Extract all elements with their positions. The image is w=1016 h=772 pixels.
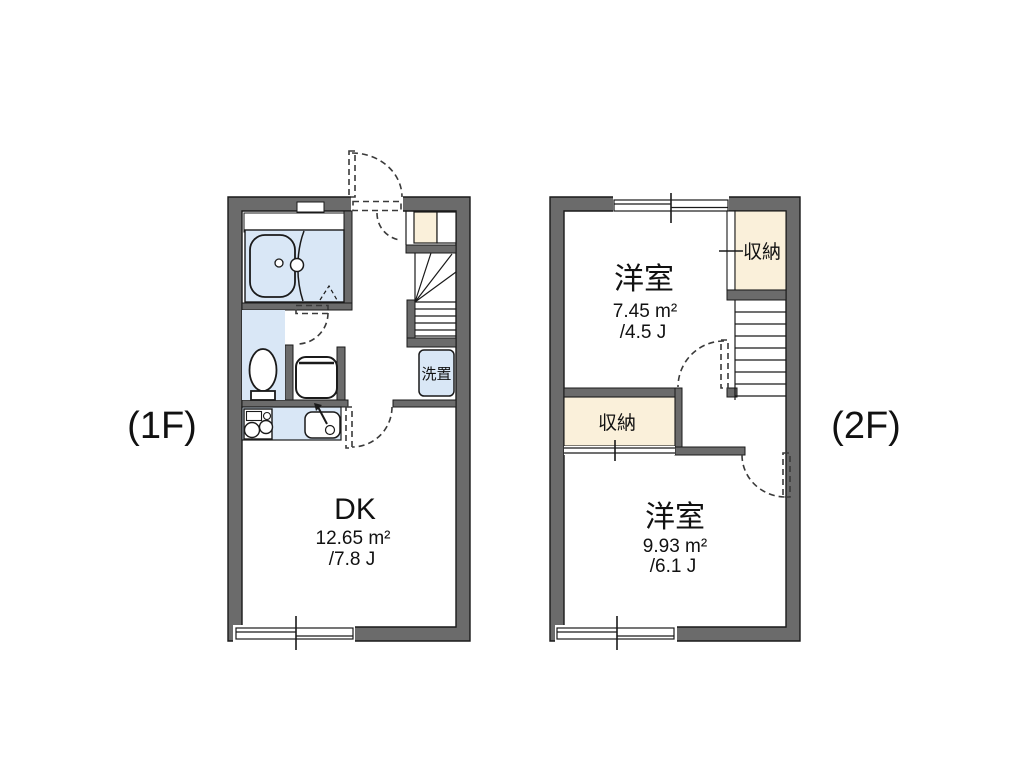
- room-bottom-label: 洋室: [645, 501, 705, 534]
- window-2f-top: [613, 193, 729, 223]
- room-top-door-leaf: [721, 340, 728, 388]
- floor-2f-plan: 収納 収納 洋室: [550, 193, 800, 650]
- washbasin: [296, 357, 337, 398]
- stove: [244, 409, 273, 439]
- room-bottom-door-swing: [742, 455, 785, 497]
- floor-1f-plan: 洗置 DK 12.65 m² /7.8 J: [228, 151, 470, 650]
- small-window-1f: [297, 202, 324, 212]
- bathroom: [244, 213, 344, 302]
- closet-bottom: 収納: [564, 397, 675, 461]
- room-bottom-jo: /6.1 J: [650, 556, 696, 577]
- genkan-door-swing: [377, 213, 400, 240]
- floorplan-drawing: 洗置 DK 12.65 m² /7.8 J: [0, 0, 1016, 772]
- dk-jo-label: /7.8 J: [329, 549, 375, 570]
- room-bottom-area: 9.93 m²: [643, 536, 707, 557]
- window-2f-bottom: [555, 616, 677, 650]
- entrance-door-leaf: [349, 151, 355, 197]
- closet-bottom-label: 収納: [598, 412, 636, 434]
- dk-room-label: DK: [334, 493, 376, 526]
- laundry-label: 洗置: [421, 366, 451, 383]
- closet-top: 収納: [719, 211, 786, 290]
- dk-door-leaf: [346, 407, 352, 448]
- toilet-room: [242, 310, 285, 400]
- shoe-cabinet: [406, 211, 456, 245]
- bathroom-door-swing: [297, 313, 328, 344]
- stairs-2f: [735, 300, 786, 400]
- bath-drain: [291, 259, 304, 272]
- laundry-space: 洗置: [419, 350, 454, 396]
- toilet: [250, 349, 277, 391]
- stairs-1f: [415, 253, 456, 336]
- room-top-jo: /4.5 J: [620, 322, 666, 343]
- bathtub: [250, 235, 295, 297]
- floorplan-canvas: 洗置 DK 12.65 m² /7.8 J: [0, 0, 1016, 772]
- room-top-label: 洋室: [614, 263, 674, 296]
- dk-door-swing: [352, 407, 392, 447]
- window-1f-bottom: [233, 616, 355, 650]
- entrance-door-swing: [352, 153, 402, 197]
- closet-top-label: 収納: [743, 241, 781, 263]
- bathtub-drain: [275, 259, 283, 267]
- floor2-label: (2F): [831, 405, 901, 447]
- floor1-label: (1F): [127, 405, 197, 447]
- kitchen: [242, 403, 341, 440]
- dk-area-label: 12.65 m²: [316, 528, 391, 549]
- room-top-door-swing: [678, 341, 724, 387]
- room-top-area: 7.45 m²: [613, 301, 677, 322]
- doors-2f: [678, 340, 790, 497]
